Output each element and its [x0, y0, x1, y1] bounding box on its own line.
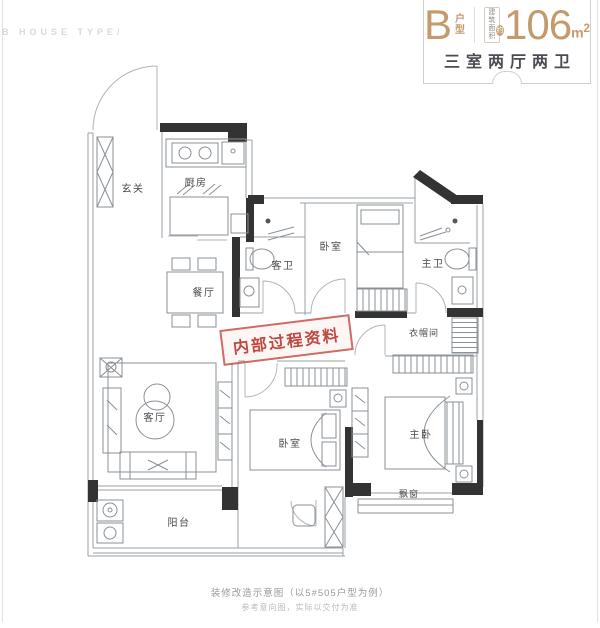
room-label-bedroom2: 卧室	[279, 437, 302, 450]
area-approx-circle: 约	[496, 25, 504, 36]
master-bedroom-furniture	[352, 355, 473, 482]
footer-caption: 装修改造示意图（以5#505户型为例）	[0, 585, 600, 599]
cloakroom-closet	[452, 318, 478, 353]
balcony-appliances	[97, 500, 123, 543]
shoe-cabinet	[97, 137, 113, 207]
room-label-entry: 玄关	[122, 182, 145, 195]
room-label-master-bath: 主卫	[422, 258, 445, 270]
bay-window-shape	[358, 499, 453, 513]
room-label-living: 客厅	[144, 411, 167, 424]
floorplan-drawing: 玄关 厨房 餐厅 客卫 卧室 主卫 衣帽间 客厅 卧室 主卧 阳台 飘窗	[0, 0, 600, 628]
bedroom1-furniture	[357, 205, 407, 311]
room-label-balcony: 阳台	[168, 516, 191, 529]
guest-bath-fixtures	[240, 248, 274, 307]
room-label-guest-bath: 客卫	[272, 259, 295, 272]
room-label-master-bedroom: 主卧	[410, 428, 433, 441]
room-label-bedroom1: 卧室	[320, 240, 343, 253]
bedroom2-furniture	[250, 368, 347, 547]
room-label-bay-window: 飘窗	[399, 488, 419, 499]
room-label-dining: 餐厅	[193, 286, 216, 299]
room-label-cloakroom: 衣帽间	[409, 327, 439, 338]
room-label-kitchen: 厨房	[185, 176, 208, 189]
floorplan-page: B HOUSE TYPE/ B 户 型 建筑 面积 约 106 m2 三室两厅两…	[0, 0, 600, 628]
footer: 装修改造示意图（以5#505户型为例） 参考意向图，实际以交付为准	[0, 585, 600, 613]
footer-disclaimer: 参考意向图，实际以交付为准	[0, 602, 600, 613]
